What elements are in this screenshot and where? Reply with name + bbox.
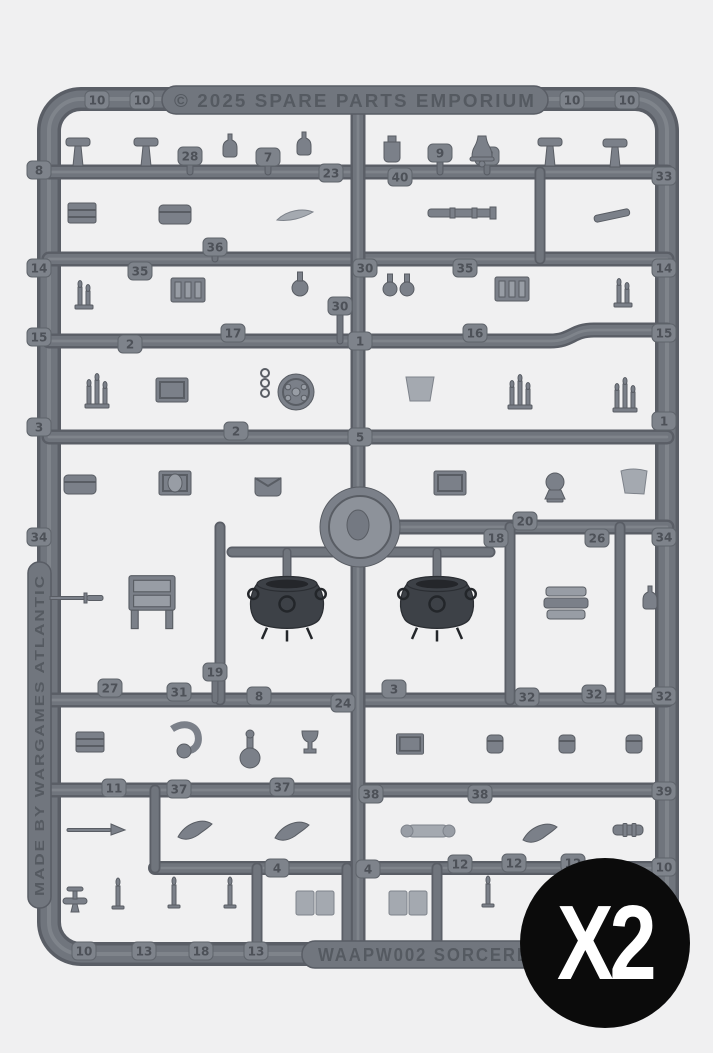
part-number-tab: 16 — [463, 324, 487, 342]
part-number-tab: 18 — [484, 529, 508, 547]
part-number-tab: 30 — [328, 297, 352, 315]
horn-part — [523, 824, 557, 842]
part-number: 8 — [255, 690, 263, 704]
part-number: 27 — [102, 682, 119, 696]
part-number: 9 — [436, 147, 444, 161]
quantity-badge: X2 — [520, 858, 690, 1028]
scrollpart-part — [401, 825, 455, 837]
part-number: 14 — [656, 262, 673, 276]
part-number-tab: 10 — [85, 91, 109, 109]
part-number-tab: 34 — [652, 528, 676, 546]
bottle-part — [297, 132, 311, 155]
part-number: 4 — [273, 862, 281, 876]
candelabra3-part — [85, 374, 109, 409]
pouch-part — [487, 735, 503, 753]
candle-part — [168, 877, 180, 908]
part-number-tab: 31 — [167, 683, 191, 701]
part-number-tab: 18 — [189, 942, 213, 960]
orb-part — [545, 473, 565, 502]
part-number: 8 — [35, 164, 43, 178]
bottle-part — [643, 586, 657, 609]
part-number: 13 — [136, 945, 153, 959]
quantity-badge-label: X2 — [557, 890, 653, 996]
pipe-part — [172, 725, 198, 758]
part-number-tab: 15 — [652, 324, 676, 342]
part-number-tab: 10 — [560, 91, 584, 109]
part-number: 10 — [134, 94, 151, 108]
funnel-part — [240, 730, 260, 768]
mallet-part — [66, 138, 90, 166]
tome-part — [434, 471, 466, 495]
shelf-part — [171, 278, 205, 302]
part-number: 36 — [207, 241, 224, 255]
crate-part — [68, 203, 96, 223]
part-number-tab: 28 — [178, 147, 202, 165]
part-number-tab: 8 — [27, 161, 51, 179]
part-number: 17 — [225, 327, 242, 341]
part-number-tab: 2 — [118, 335, 142, 353]
part-number: 24 — [335, 697, 352, 711]
part-number-tab: 35 — [128, 262, 152, 280]
part-number: 3 — [390, 683, 398, 697]
part-number-tab: 39 — [652, 782, 676, 800]
scrolls-part — [544, 587, 588, 619]
part-number: 40 — [392, 171, 409, 185]
shield-part — [278, 374, 314, 410]
part-number: 19 — [207, 666, 224, 680]
pouch-part — [626, 735, 642, 753]
mallet-part — [134, 138, 158, 166]
part-number-tab: 33 — [652, 167, 676, 185]
bottlepair-part — [383, 274, 414, 296]
part-number-tab: 7 — [256, 148, 280, 166]
part-number-tab: 35 — [453, 259, 477, 277]
part-number-tab: 24 — [331, 694, 355, 712]
part-number: 13 — [248, 945, 265, 959]
spigot-part — [63, 887, 87, 912]
candelabra3-part — [508, 375, 532, 410]
part-number: 38 — [472, 788, 489, 802]
part-number: 12 — [452, 858, 469, 872]
part-number: 7 — [264, 151, 272, 165]
part-number-tab: 37 — [270, 778, 294, 796]
part-number: 32 — [519, 691, 536, 705]
cauldron-part — [248, 577, 326, 642]
part-number-tab: 9 — [428, 144, 452, 162]
candle-part — [482, 876, 494, 907]
tome-part — [156, 378, 188, 402]
part-number: 2 — [126, 338, 134, 352]
part-number-tab: 20 — [513, 512, 537, 530]
part-number-tab: 3 — [27, 418, 51, 436]
part-number-tab: 32 — [515, 688, 539, 706]
part-number-tab: 34 — [27, 528, 51, 546]
horn-part — [178, 821, 212, 839]
part-number: 39 — [656, 785, 673, 799]
part-number: 33 — [656, 170, 673, 184]
telescope-part — [428, 207, 496, 219]
part-number-tab: 17 — [221, 324, 245, 342]
flask-part — [292, 272, 308, 296]
part-number: 30 — [357, 262, 374, 276]
mallet-part — [603, 139, 627, 167]
candle-part — [112, 878, 124, 909]
part-number: 32 — [656, 690, 673, 704]
part-number: 26 — [589, 532, 606, 546]
part-number-tab: 11 — [102, 779, 126, 797]
part-number-tab: 12 — [448, 855, 472, 873]
part-number-tab: 13 — [132, 942, 156, 960]
part-number: 15 — [656, 327, 673, 341]
side-brand-text: MADE BY WARGAMES ATLANTIC — [32, 574, 47, 896]
part-number: 34 — [31, 531, 48, 545]
part-number: 15 — [31, 331, 48, 345]
part-number: 2 — [232, 425, 240, 439]
horn-part — [275, 822, 309, 840]
part-number-tab: 10 — [130, 91, 154, 109]
goblet-part — [302, 731, 318, 753]
quill-part — [277, 210, 313, 220]
part-number-tab: 2 — [224, 422, 248, 440]
part-number: 16 — [467, 327, 484, 341]
part-number-tab: 26 — [585, 529, 609, 547]
part-number-tab: 8 — [247, 687, 271, 705]
cauldron-part — [398, 577, 476, 642]
banner-part — [406, 377, 434, 401]
jug-part — [384, 136, 400, 162]
bag-part — [255, 478, 281, 496]
part-number: 4 — [364, 863, 372, 877]
part-number-tab: 30 — [353, 259, 377, 277]
part-number: 10 — [656, 861, 673, 875]
part-number-tab: 13 — [244, 942, 268, 960]
part-number-tab: 38 — [359, 785, 383, 803]
shelf-part — [495, 277, 529, 301]
part-number: 28 — [182, 150, 199, 164]
part-number-tab: 10 — [72, 942, 96, 960]
part-number-tab: 12 — [502, 854, 526, 872]
product-code-text: WAAPW002 SORCERE — [318, 945, 530, 965]
openbook-part — [296, 891, 334, 915]
part-number: 34 — [656, 531, 673, 545]
drape-part — [621, 469, 647, 494]
part-number-tab: 38 — [468, 785, 492, 803]
part-number: 10 — [564, 94, 581, 108]
part-number-tab: 19 — [203, 663, 227, 681]
part-number-tab: 36 — [203, 238, 227, 256]
part-number: 32 — [586, 688, 603, 702]
chain-part — [261, 369, 269, 397]
part-number-tab: 4 — [356, 860, 380, 878]
desk-part — [129, 576, 175, 629]
part-number: 11 — [106, 782, 123, 796]
openbook-part — [389, 891, 427, 915]
part-number: 31 — [171, 686, 188, 700]
part-number-tab: 1 — [348, 332, 372, 350]
sprue-product-photo: © 2025 SPARE PARTS EMPORIUM WAAPW002 SOR… — [0, 0, 713, 1053]
candelabra3-part — [613, 378, 637, 413]
part-number: 12 — [506, 857, 523, 871]
part-number: 35 — [457, 262, 474, 276]
part-number: 1 — [660, 415, 668, 429]
spear-part — [67, 824, 125, 835]
part-number: 37 — [171, 783, 188, 797]
satchel-part — [64, 475, 96, 494]
part-number-tab: 14 — [652, 259, 676, 277]
top-brand-text: © 2025 SPARE PARTS EMPORIUM — [174, 91, 536, 111]
strap-part — [594, 208, 631, 222]
part-number-tab: 32 — [652, 687, 676, 705]
part-number-tab: 40 — [388, 168, 412, 186]
part-number-tab: 14 — [27, 259, 51, 277]
tube-part — [613, 824, 643, 837]
part-number: 5 — [356, 431, 364, 445]
part-number-tab: 1 — [652, 412, 676, 430]
tome-part — [396, 734, 423, 754]
part-number: 30 — [332, 300, 349, 314]
part-number: 14 — [31, 262, 48, 276]
part-number: 18 — [488, 532, 505, 546]
part-number: 38 — [363, 788, 380, 802]
crate-part — [76, 732, 104, 752]
mallet-part — [538, 138, 562, 166]
part-number-tab: 32 — [582, 685, 606, 703]
part-number: 10 — [76, 945, 93, 959]
part-number: 3 — [35, 421, 43, 435]
part-number: 35 — [132, 265, 149, 279]
candle-part — [224, 877, 236, 908]
satchel-part — [159, 205, 191, 224]
part-number: 10 — [89, 94, 106, 108]
part-number-tab: 3 — [382, 680, 406, 698]
part-number: 1 — [356, 335, 364, 349]
part-number: 10 — [619, 94, 636, 108]
tomeoval-part — [159, 471, 191, 495]
part-number: 23 — [323, 167, 340, 181]
part-number-tab: 27 — [98, 679, 122, 697]
part-number-tab: 4 — [265, 859, 289, 877]
part-number-tab: 15 — [27, 328, 51, 346]
part-number-tab: 37 — [167, 780, 191, 798]
part-number-tab: 5 — [348, 428, 372, 446]
candelabra2-part — [75, 281, 93, 310]
bottle-part — [223, 134, 237, 157]
part-number: 18 — [193, 945, 210, 959]
candelabra2-part — [614, 279, 632, 308]
part-number: 20 — [517, 515, 534, 529]
medallion-part — [320, 487, 400, 567]
part-number-tab: 10 — [615, 91, 639, 109]
part-number-tab: 10 — [652, 858, 676, 876]
pouch-part — [559, 735, 575, 753]
part-number: 37 — [274, 781, 291, 795]
part-number-tab: 23 — [319, 164, 343, 182]
